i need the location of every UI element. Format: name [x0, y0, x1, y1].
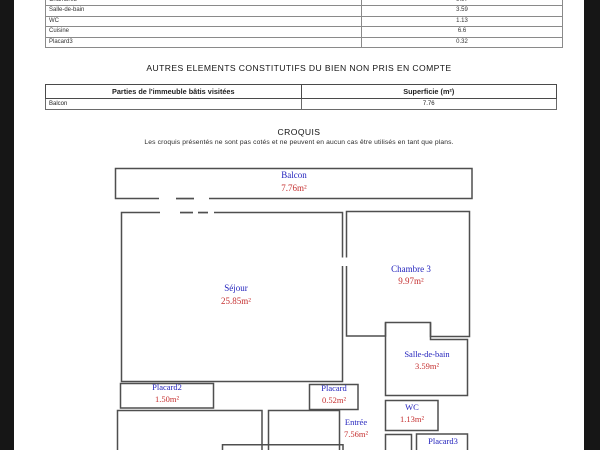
room-area: 25.85m²: [176, 297, 296, 306]
lower-box-outline: [223, 445, 344, 450]
room-label-salle-de-bain: Salle-de-bain 3.59m²: [367, 350, 487, 371]
room-label-placard3: Placard3: [383, 437, 503, 449]
room-label-entree: Entrée 7.56m²: [296, 418, 416, 439]
room-name: Balcon: [234, 171, 354, 180]
room-label-chambre3: Chambre 3 9.97m²: [351, 265, 471, 287]
room-name: Salle-de-bain: [367, 350, 487, 359]
document-viewport: Chambre3 9.97 Salle-de-bain 3.59 WC 1.13…: [0, 0, 600, 450]
room-area: 3.59m²: [367, 362, 487, 371]
room-name: Placard: [274, 384, 394, 393]
room-label-balcon: Balcon 7.76m²: [234, 171, 354, 193]
room-area: 7.76m²: [234, 184, 354, 193]
room-name: Entrée: [296, 418, 416, 427]
room-label-placard: Placard 0.52m²: [274, 384, 394, 405]
room-area: 9.97m²: [351, 277, 471, 286]
room-name: Séjour: [176, 284, 296, 293]
room-area: 0.52m²: [274, 396, 394, 405]
room-area: 1.50m²: [107, 395, 227, 404]
sejour-window-dash: [198, 212, 208, 214]
room-name: Placard3: [383, 437, 503, 446]
room-label-placard2: Placard2 1.50m²: [107, 383, 227, 404]
room-name: Chambre 3: [351, 265, 471, 274]
balcony-door-dash: [176, 198, 194, 200]
sejour-chambre-door-gap: [341, 258, 349, 267]
sejour-window-dash: [180, 212, 193, 214]
room-name: Placard2: [107, 383, 227, 392]
floorplan-drawing: [0, 0, 600, 450]
room-label-sejour: Séjour 25.85m²: [176, 284, 296, 306]
